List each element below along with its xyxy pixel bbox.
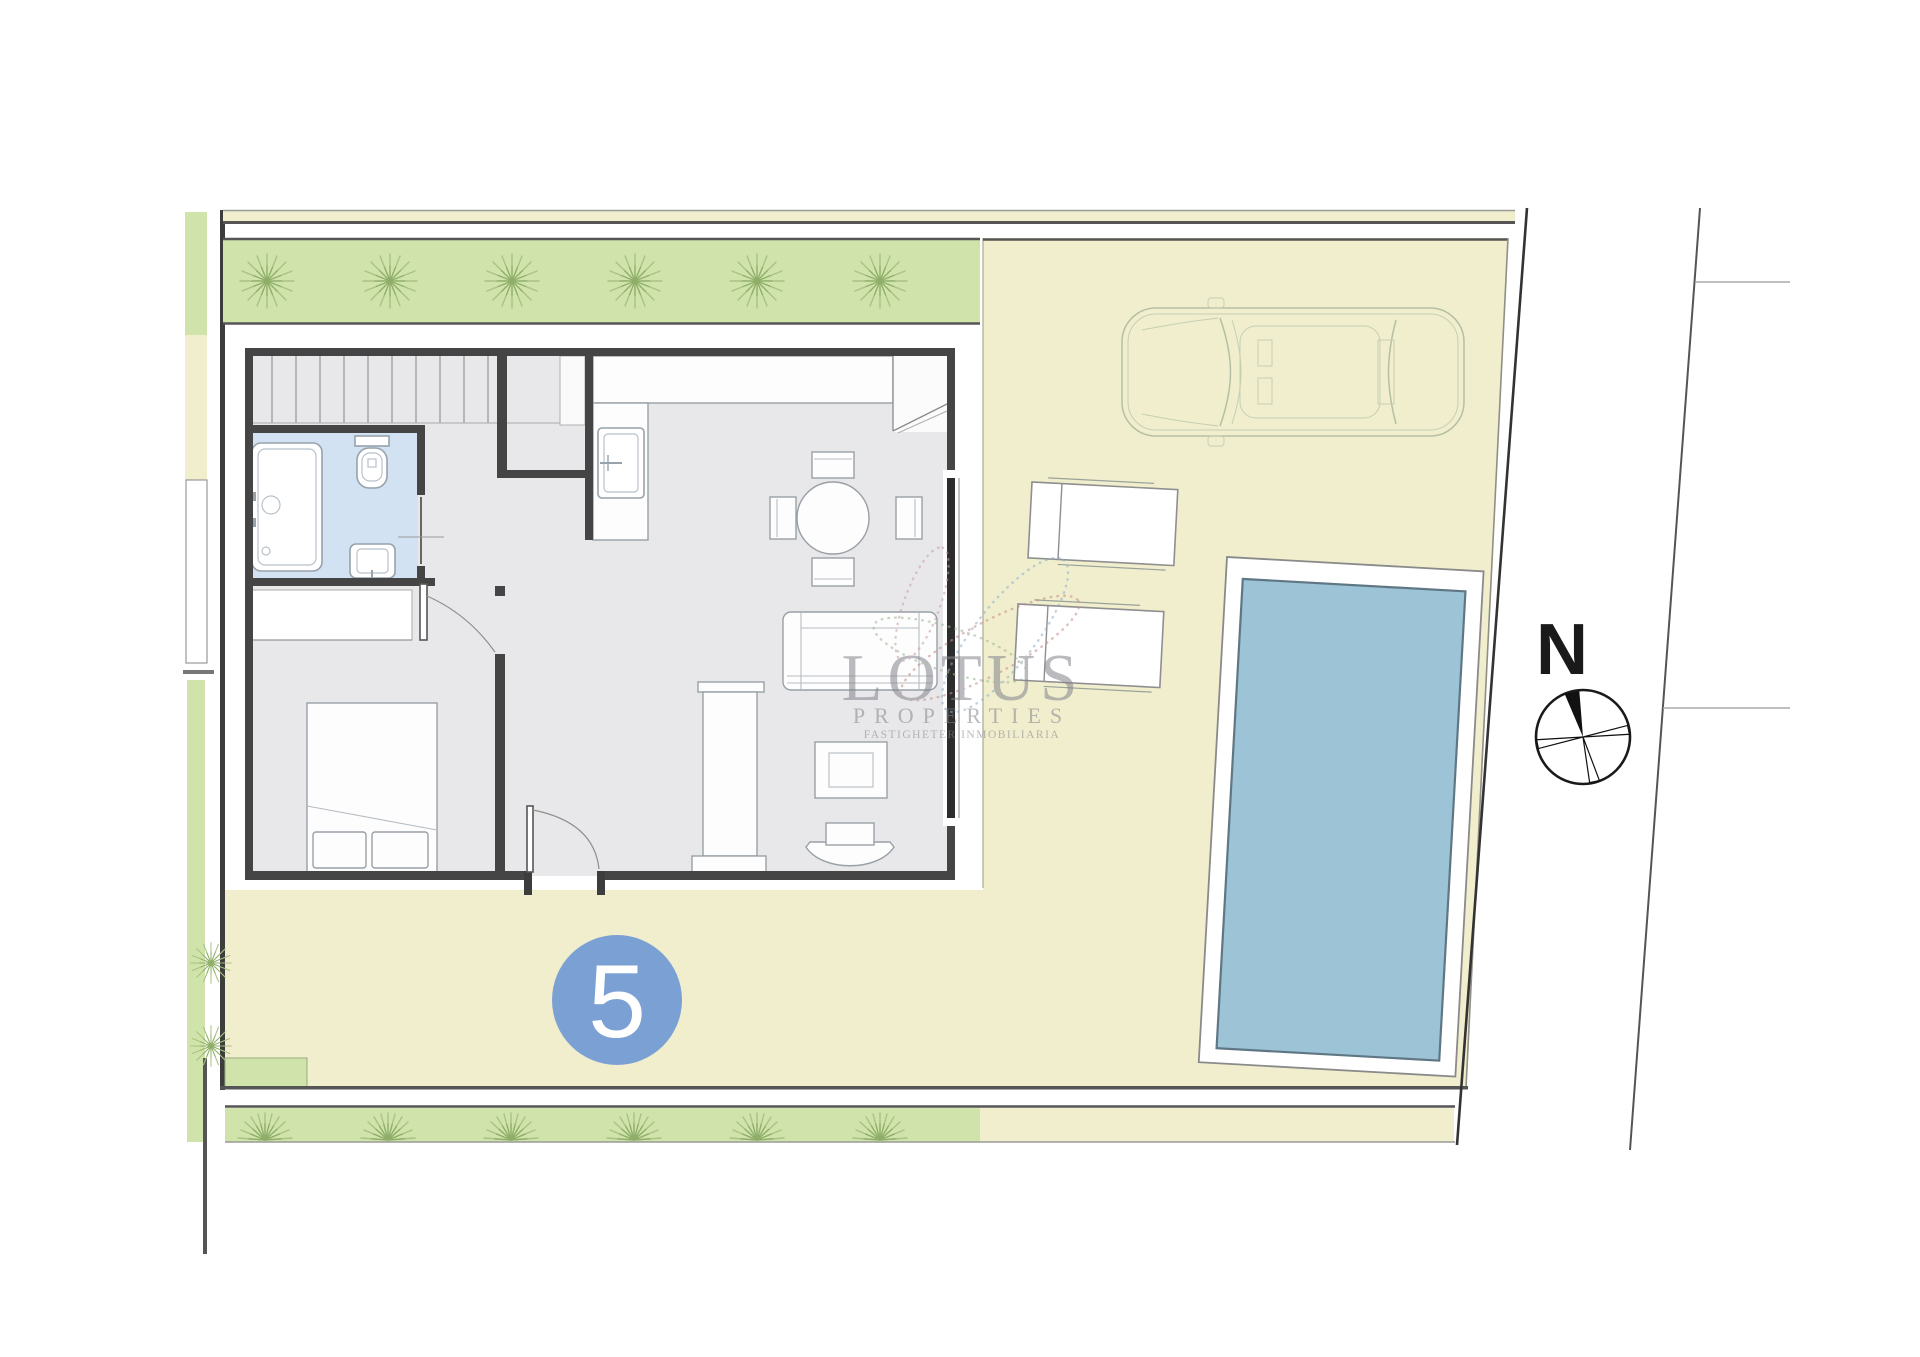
bathroom	[245, 433, 418, 582]
chair	[812, 452, 854, 478]
bathroom-sink	[350, 544, 395, 582]
tree-icon	[240, 254, 294, 308]
road-lines	[1457, 208, 1790, 1150]
top-grass-strip	[223, 239, 980, 324]
chair	[896, 497, 922, 539]
sun-lounger	[1028, 477, 1178, 571]
wardrobe	[252, 590, 412, 640]
road-edge-line	[1630, 208, 1700, 1150]
top-sidewalk-strip	[223, 211, 1515, 225]
compass-north-label: N	[1536, 610, 1588, 690]
kitchen-sink	[598, 428, 644, 498]
tree-icon	[485, 254, 539, 308]
entrance-door	[527, 806, 533, 872]
plot-number-label: 5	[588, 944, 646, 1060]
bathtub	[247, 443, 322, 571]
tall-cabinet	[692, 682, 766, 872]
landing-shelf	[560, 356, 585, 425]
corner-cabinet	[893, 356, 947, 433]
plot-number-badge: 5	[552, 935, 682, 1065]
shrub-icon	[191, 1026, 232, 1067]
tree-icon	[853, 254, 907, 308]
tree-icon	[363, 254, 417, 308]
tree-icon	[608, 254, 662, 308]
pool-water	[1217, 579, 1466, 1061]
house	[245, 348, 979, 895]
coffee-table	[815, 742, 887, 798]
tree-icon	[730, 254, 784, 308]
chair	[770, 497, 796, 539]
site-plan: 5 N LOTUS PROPERTIES FASTIGHETER INMOBIL…	[0, 0, 1920, 1357]
corner-grass-patch	[225, 1058, 307, 1088]
bottom-street-strip	[225, 1107, 1455, 1143]
pool	[1199, 557, 1484, 1077]
toilet	[355, 436, 389, 488]
plot-boundary-bottom	[220, 1086, 1468, 1090]
chair	[812, 558, 854, 586]
bedroom-door	[420, 584, 427, 640]
watermark-subtitle: PROPERTIES	[853, 703, 1071, 728]
shrub-icon	[191, 943, 232, 984]
bed	[307, 703, 437, 873]
compass-icon: N	[1528, 610, 1637, 792]
watermark-tagline: FASTIGHETER INMOBILIARIA	[864, 729, 1060, 741]
left-neighbour-strips	[183, 212, 214, 1254]
kitchen-counter-top	[593, 356, 893, 403]
dining-table	[797, 482, 869, 554]
